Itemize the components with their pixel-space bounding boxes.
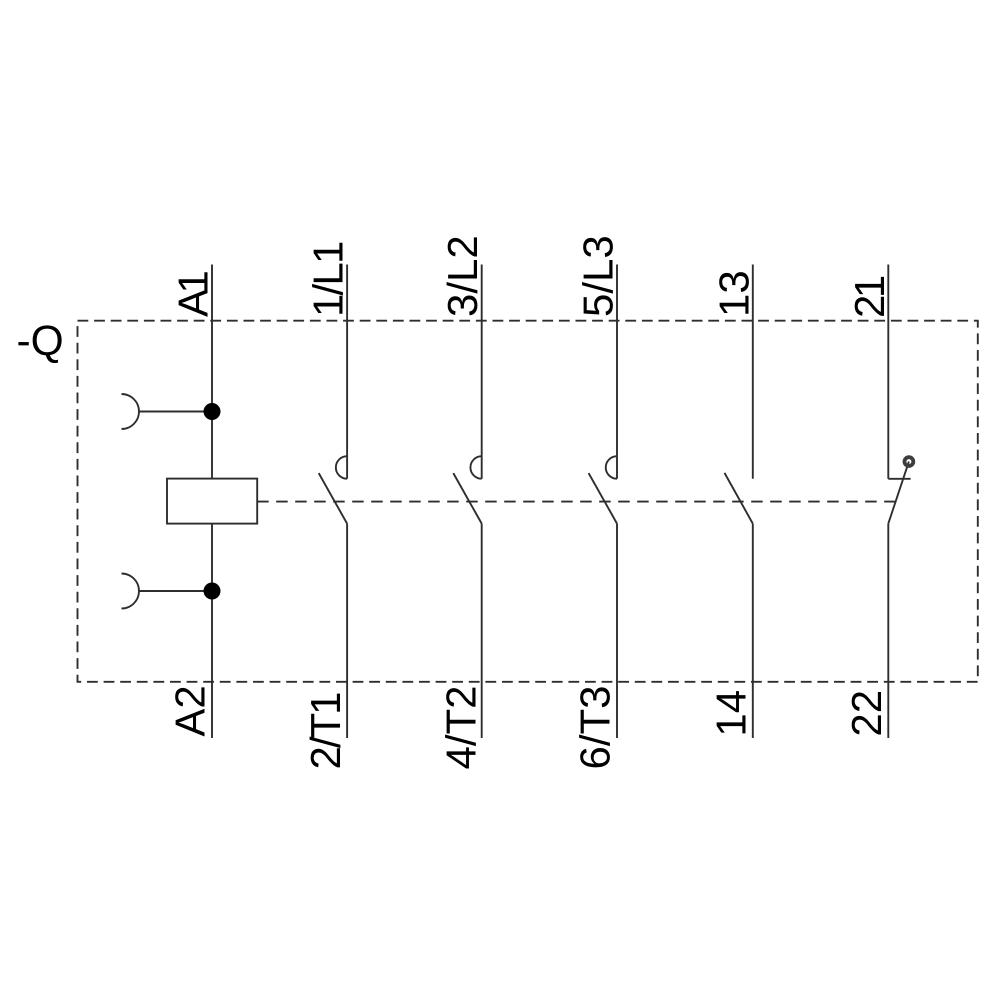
- svg-text:6/T3: 6/T3: [572, 685, 619, 769]
- svg-text:22: 22: [843, 690, 890, 737]
- svg-text:A2: A2: [167, 685, 214, 736]
- svg-text:5/L3: 5/L3: [575, 235, 622, 317]
- svg-text:3/L2: 3/L2: [439, 235, 486, 317]
- svg-text:A1: A1: [170, 271, 217, 317]
- svg-text:1/L1: 1/L1: [305, 242, 352, 317]
- svg-text:-Q: -Q: [17, 318, 64, 365]
- svg-text:21: 21: [846, 276, 893, 318]
- svg-text:13: 13: [710, 270, 757, 317]
- svg-text:2/T1: 2/T1: [302, 693, 349, 770]
- svg-text:14: 14: [708, 690, 755, 737]
- svg-text:4/T2: 4/T2: [438, 685, 485, 769]
